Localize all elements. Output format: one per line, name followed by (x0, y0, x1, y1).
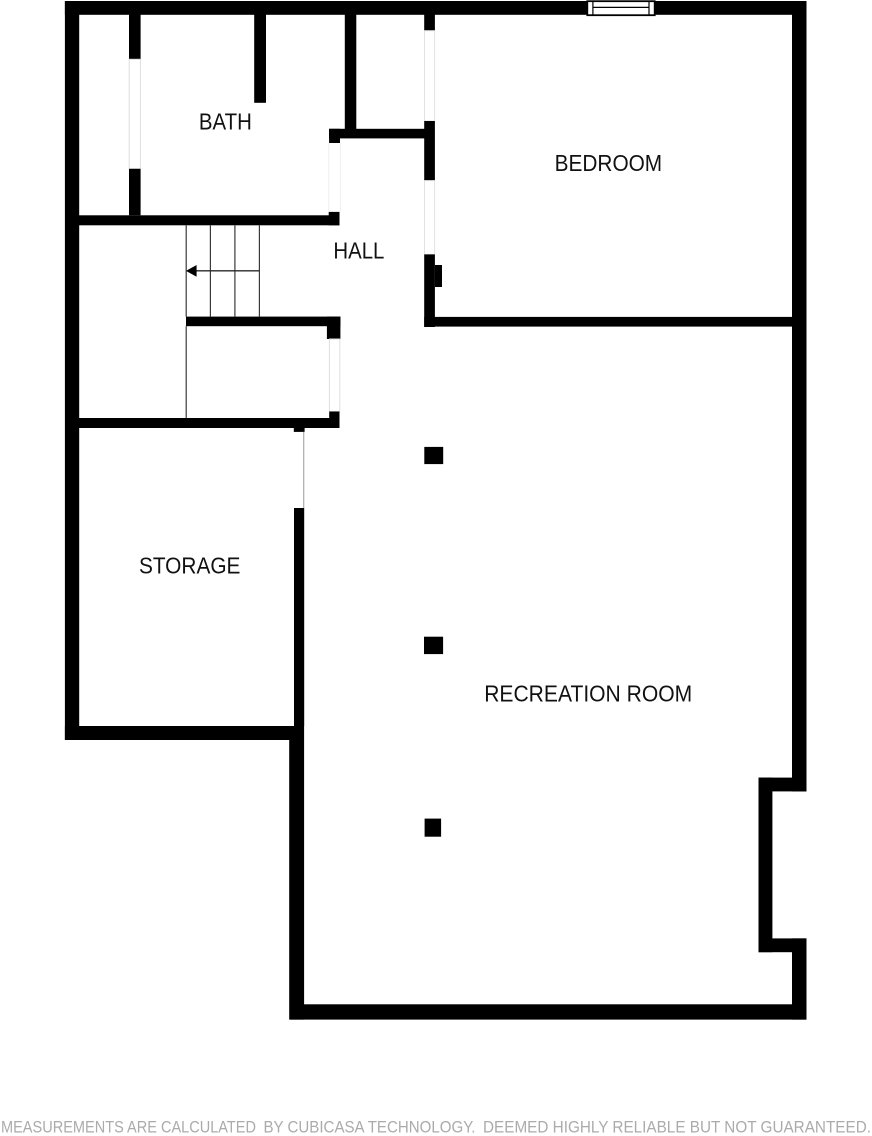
svg-text:BEDROOM: BEDROOM (555, 150, 663, 176)
svg-text:MEASUREMENTS ARE CALCULATED: MEASUREMENTS ARE CALCULATED (1, 1119, 256, 1136)
svg-text:HALL: HALL (333, 237, 384, 263)
svg-text:DEEMED HIGHLY RELIABLE BUT NOT: DEEMED HIGHLY RELIABLE BUT NOT GUARANTEE… (483, 1119, 871, 1136)
svg-text:RECREATION ROOM: RECREATION ROOM (484, 681, 692, 707)
svg-text:BATH: BATH (199, 109, 252, 135)
svg-text:BY CUBICASA TECHNOLOGY.: BY CUBICASA TECHNOLOGY. (264, 1119, 476, 1136)
svg-text:STORAGE: STORAGE (139, 553, 241, 579)
